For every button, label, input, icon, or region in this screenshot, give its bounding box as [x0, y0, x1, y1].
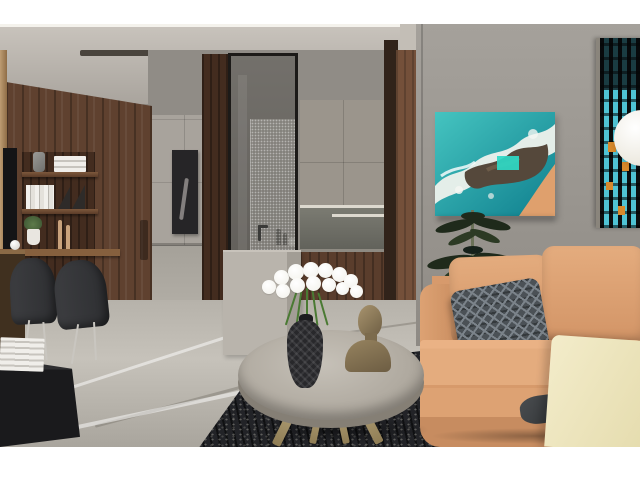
ocean-artwork	[435, 112, 555, 216]
white-flower	[350, 285, 363, 298]
white-flower	[318, 263, 333, 278]
white-flower	[306, 276, 321, 291]
glass-reflection	[238, 75, 247, 275]
leaning-books	[26, 185, 54, 209]
white-flower	[262, 280, 276, 294]
kitchen-upper-cabinets	[300, 100, 388, 205]
artwork-figure	[179, 178, 189, 220]
wood-shelf	[22, 172, 98, 177]
white-flower	[276, 284, 290, 298]
sofa-cushion	[542, 246, 640, 344]
white-book-stack	[54, 156, 86, 172]
gray-vase	[33, 152, 45, 172]
window-orange-cell	[606, 182, 613, 190]
photo-frame	[0, 0, 640, 480]
white-flower	[290, 278, 305, 293]
black-vase	[287, 320, 323, 388]
deco-ball	[10, 240, 20, 250]
wardrobe-handle	[140, 220, 148, 260]
bronze-bust	[345, 340, 391, 372]
ocean-artwork-canvas	[435, 112, 555, 216]
white-flower	[274, 270, 289, 285]
wood-shelf	[22, 209, 98, 214]
cream-armchair	[544, 335, 640, 447]
books-on-cabinet	[0, 337, 45, 372]
letterbox-top	[0, 0, 640, 24]
window-orange-cell	[618, 206, 625, 215]
coffee-table	[238, 330, 424, 420]
candlestick	[66, 225, 70, 249]
dark-artwork	[172, 150, 198, 234]
cove-light	[0, 24, 452, 27]
letterbox-bottom	[0, 447, 640, 480]
small-plant-pot	[27, 229, 40, 245]
window-orange-cell	[622, 162, 629, 171]
small-plant	[24, 216, 42, 230]
candlestick	[58, 220, 62, 249]
white-flower	[336, 282, 349, 295]
living-room-scene	[0, 24, 640, 447]
kitchen-shelf-light	[332, 214, 388, 217]
faucet-spout	[258, 225, 268, 228]
window-dark-band	[600, 38, 640, 90]
white-flower	[322, 278, 336, 292]
glass-frame-top	[228, 53, 298, 56]
